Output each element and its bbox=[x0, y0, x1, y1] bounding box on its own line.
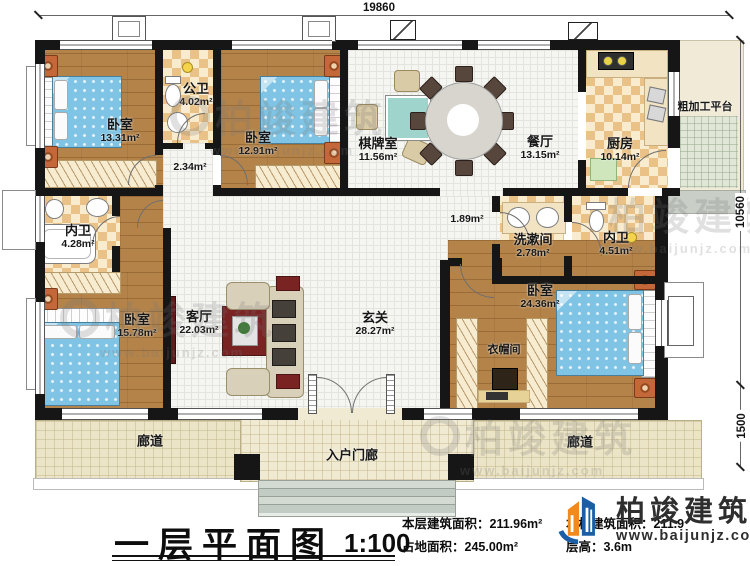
brand-text-block: 柏竣建筑 www.baijunjz.com bbox=[616, 497, 750, 543]
room-area: 4.51m² bbox=[599, 245, 632, 257]
dimension-label-right-upper: 10560 bbox=[735, 193, 747, 231]
side-table bbox=[276, 276, 300, 291]
room-name: 玄关 bbox=[362, 310, 388, 325]
entry-door-leaf bbox=[386, 374, 395, 414]
room-name: 衣帽间 bbox=[488, 344, 521, 356]
room-label-public-bath: 公卫4.02m² bbox=[179, 82, 212, 108]
window bbox=[424, 408, 472, 420]
room-label-bath-right: 内卫4.51m² bbox=[599, 231, 632, 257]
wall bbox=[35, 188, 163, 196]
door-opening bbox=[668, 148, 680, 188]
room-area: 1.89m² bbox=[450, 214, 483, 226]
dressing-stool bbox=[486, 392, 508, 400]
wall bbox=[440, 260, 450, 410]
room-label-passage: 1.89m² bbox=[450, 214, 483, 226]
bay-window-left bbox=[2, 190, 36, 250]
room-area: 11.56m² bbox=[358, 151, 397, 163]
bed-headboard bbox=[38, 308, 120, 323]
sink bbox=[536, 207, 559, 228]
chair bbox=[356, 104, 378, 130]
stat-value: 245.00m² bbox=[465, 540, 519, 554]
room-label-corridor-left: 廊道 bbox=[137, 435, 163, 450]
dining-chair bbox=[410, 112, 426, 130]
room-name: 公卫 bbox=[183, 81, 209, 96]
dormer-window-inner bbox=[308, 21, 330, 37]
stat-value: 211.96m² bbox=[490, 517, 543, 531]
room-area: 15.78m² bbox=[117, 327, 156, 339]
wall bbox=[205, 143, 221, 149]
wall bbox=[163, 228, 171, 410]
closet-bedroom-2 bbox=[255, 165, 345, 190]
wall bbox=[340, 50, 348, 196]
wall bbox=[112, 246, 120, 272]
room-area: 12.91m² bbox=[238, 145, 277, 157]
step bbox=[259, 489, 455, 497]
stat-label: 占地面积： bbox=[402, 540, 465, 554]
room-area: 2.78m² bbox=[513, 247, 552, 259]
porch-column-right bbox=[448, 454, 474, 480]
room-area: 4.02m² bbox=[179, 96, 212, 108]
room-area: 4.28m² bbox=[61, 238, 94, 250]
room-name: 厨房 bbox=[607, 136, 633, 151]
room-label-platform: 粗加工平台 bbox=[678, 101, 733, 113]
room-name: 内卫 bbox=[65, 223, 91, 238]
bay-window-right-inner bbox=[668, 296, 694, 346]
pillow bbox=[628, 332, 642, 364]
window bbox=[62, 408, 148, 420]
brand-logo-icon bbox=[552, 489, 608, 552]
wall bbox=[112, 196, 120, 216]
window bbox=[60, 40, 152, 50]
wall bbox=[155, 50, 163, 155]
pillow bbox=[628, 294, 642, 330]
sofa-bottom bbox=[226, 368, 270, 396]
room-label-living-room: 客厅22.03m² bbox=[179, 310, 218, 336]
room-area: 13.31m² bbox=[100, 132, 139, 144]
dining-table-center bbox=[447, 104, 479, 136]
room-label-hall: 2.34m² bbox=[173, 162, 206, 174]
room-name: 粗加工平台 bbox=[678, 101, 733, 113]
room-area: 13.15m² bbox=[520, 149, 559, 161]
kitchen-sink bbox=[647, 104, 667, 122]
floor-plan-canvas: 卧室13.31m² 公卫4.02m² 2.34m² 卧室12.91m² 棋牌室1… bbox=[0, 0, 750, 566]
step bbox=[259, 505, 455, 513]
wall bbox=[494, 258, 502, 278]
window bbox=[655, 300, 668, 346]
room-name: 卧室 bbox=[124, 312, 150, 327]
wall bbox=[348, 188, 440, 196]
sink bbox=[86, 198, 109, 217]
window bbox=[232, 40, 332, 50]
room-area: 2.34m² bbox=[173, 162, 206, 174]
room-area: 10.14m² bbox=[600, 151, 639, 163]
room-label-kitchen: 厨房10.14m² bbox=[600, 137, 639, 163]
room-name: 棋牌室 bbox=[358, 136, 397, 151]
window bbox=[478, 40, 550, 50]
window bbox=[35, 302, 45, 394]
pillow bbox=[41, 325, 77, 339]
step bbox=[259, 481, 455, 489]
room-label-corridor-right: 廊道 bbox=[567, 436, 593, 451]
room-label-bedroom-2: 卧室12.91m² bbox=[238, 131, 277, 157]
light-fixture bbox=[182, 62, 193, 73]
toilet-tank bbox=[586, 202, 606, 210]
dormer-window-inner bbox=[118, 21, 140, 37]
room-name: 卧室 bbox=[107, 117, 133, 132]
room-label-washroom: 洗漱间2.78m² bbox=[513, 233, 552, 259]
window bbox=[35, 196, 45, 242]
wardrobe-strip-left bbox=[456, 318, 478, 410]
entry-steps bbox=[258, 480, 456, 517]
stat-floor-area: 本层建筑面积：211.96m² bbox=[402, 513, 542, 532]
flue-vent bbox=[390, 20, 416, 40]
wall bbox=[662, 188, 680, 196]
room-label-walk-in-closet: 衣帽间 bbox=[488, 344, 521, 356]
room-name: 餐厅 bbox=[527, 134, 553, 149]
porch-column-left bbox=[234, 454, 260, 480]
wall bbox=[500, 276, 655, 284]
brand-name: 柏竣建筑 bbox=[616, 497, 750, 527]
wall bbox=[492, 196, 500, 212]
room-label-bath-left: 内卫4.28m² bbox=[61, 224, 94, 250]
pillow bbox=[314, 80, 328, 108]
cushion bbox=[272, 300, 296, 318]
room-name: 卧室 bbox=[245, 130, 271, 145]
plant bbox=[238, 322, 250, 334]
room-label-bedroom-4: 卧室24.36m² bbox=[520, 284, 559, 310]
room-label-bedroom-3: 卧室15.78m² bbox=[117, 313, 156, 339]
title-underline bbox=[112, 555, 395, 561]
room-label-dining: 餐厅13.15m² bbox=[520, 135, 559, 161]
wall bbox=[213, 185, 221, 196]
cushion bbox=[272, 348, 296, 366]
pillow bbox=[54, 112, 68, 140]
room-name: 入户门廊 bbox=[326, 448, 378, 463]
cushion bbox=[272, 324, 296, 342]
room-label-entry-porch: 入户门廊 bbox=[326, 449, 378, 464]
toilet bbox=[589, 210, 604, 232]
logo-building-blue bbox=[582, 497, 595, 536]
dining-chair bbox=[455, 66, 473, 82]
side-table bbox=[276, 374, 300, 389]
toilet bbox=[45, 199, 64, 219]
flue-vent bbox=[568, 22, 598, 40]
chair bbox=[394, 70, 420, 92]
room-name: 廊道 bbox=[137, 434, 163, 449]
room-name: 洗漱间 bbox=[513, 232, 552, 247]
step bbox=[259, 497, 455, 505]
dimension-line-right bbox=[740, 40, 741, 468]
sofa-top bbox=[226, 282, 270, 310]
wall bbox=[221, 188, 348, 196]
entry-door-leaf bbox=[308, 374, 317, 414]
room-name: 廊道 bbox=[567, 435, 593, 450]
dressing-mirror bbox=[492, 368, 518, 390]
room-name: 卧室 bbox=[527, 283, 553, 298]
room-label-bedroom-1: 卧室13.31m² bbox=[100, 118, 139, 144]
nightstand bbox=[634, 378, 656, 398]
room-area: 24.36m² bbox=[520, 298, 559, 310]
wall bbox=[213, 50, 221, 155]
room-label-chess-room: 棋牌室11.56m² bbox=[358, 137, 397, 163]
window bbox=[35, 64, 45, 148]
kitchen-sink bbox=[647, 86, 667, 104]
brand-logo: 柏竣建筑 www.baijunjz.com bbox=[552, 489, 750, 552]
brand-url: www.baijunjz.com bbox=[616, 528, 750, 544]
wall bbox=[163, 143, 183, 149]
window bbox=[178, 408, 262, 420]
dimension-label-top: 19860 bbox=[360, 2, 398, 14]
wall bbox=[578, 160, 586, 188]
wall bbox=[503, 188, 628, 196]
wall bbox=[578, 50, 586, 92]
pillow bbox=[79, 325, 115, 339]
pillow bbox=[314, 108, 328, 136]
dining-chair bbox=[455, 160, 473, 176]
room-area: 22.03m² bbox=[179, 324, 218, 336]
window bbox=[358, 40, 462, 50]
room-name: 内卫 bbox=[603, 230, 629, 245]
stat-label: 本层建筑面积： bbox=[402, 517, 490, 531]
burner bbox=[617, 56, 627, 66]
dimension-line-top bbox=[38, 15, 730, 16]
wall bbox=[564, 256, 572, 276]
stat-footprint-area: 占地面积：245.00m² bbox=[402, 536, 518, 555]
room-name: 客厅 bbox=[186, 309, 212, 324]
room-label-foyer: 玄关28.27m² bbox=[355, 311, 394, 337]
pillow bbox=[54, 80, 68, 110]
room-area: 28.27m² bbox=[355, 325, 394, 337]
logo-building-orange bbox=[568, 501, 579, 536]
dimension-label-right-lower: 1500 bbox=[736, 410, 748, 442]
wall bbox=[564, 196, 572, 222]
window bbox=[520, 408, 638, 420]
platform-grid bbox=[680, 116, 738, 188]
burner bbox=[603, 56, 613, 66]
